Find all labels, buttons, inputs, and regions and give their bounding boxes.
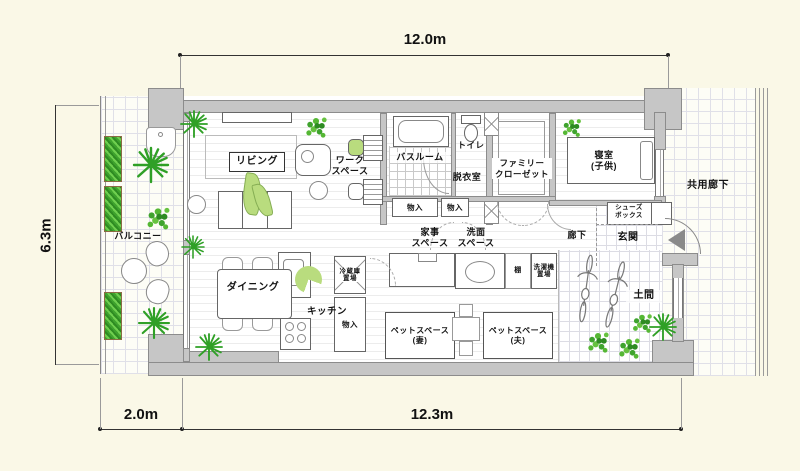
pet-center-cabinet — [459, 304, 473, 317]
dim-guide — [56, 105, 99, 106]
pet-center-cabinet — [452, 317, 480, 341]
plant-bush-icon — [144, 205, 172, 231]
room-label-dressing: 脱衣室 — [445, 172, 489, 183]
bedroom-window — [655, 150, 664, 196]
dim-guide — [182, 378, 183, 429]
balcony-planter — [104, 136, 122, 182]
washing-machine-place: 洗濯機 置場 — [531, 253, 557, 289]
pet-space-wife-label: ペットスペース (妻) — [391, 326, 450, 346]
pet-center-cabinet — [459, 341, 473, 356]
room-label-doma: 土間 — [626, 290, 662, 303]
stove-burner — [285, 334, 294, 343]
tv-board — [222, 112, 292, 123]
balcony-sink-drain — [158, 132, 163, 137]
toilet-tank — [461, 115, 481, 124]
storage-label: 物入 — [447, 203, 463, 212]
dim-guide — [681, 378, 682, 429]
shelf-area: 棚 — [505, 253, 531, 289]
bicycle-icon — [574, 254, 598, 324]
bottom-dimension-line — [100, 429, 682, 430]
storage-box: 物入 — [441, 198, 469, 217]
pet-space-husband-label: ペットスペース (夫) — [489, 326, 548, 346]
right-wall-upper — [654, 112, 666, 150]
entrance-arrow-icon — [668, 229, 685, 251]
top-dimension-line — [180, 55, 669, 56]
dim-guide — [56, 364, 99, 365]
plant-bush-icon — [585, 330, 611, 354]
room-label-washstand: 洗面 スペース — [450, 227, 502, 250]
doma-window — [673, 278, 683, 318]
plant-star-icon — [181, 111, 207, 137]
room-label-housework: 家事 スペース — [404, 227, 456, 250]
room-label-corridor: 廊下 — [558, 230, 596, 241]
washer-label: 洗濯機 置場 — [534, 264, 555, 279]
room-label-shared-corridor: 共用廊下 — [668, 180, 748, 193]
storage-box: 物入 — [392, 198, 438, 217]
window-mullion — [183, 348, 190, 362]
pet-space-wife-box: ペットスペース (妻) — [385, 312, 455, 359]
shelf-label: 棚 — [514, 267, 522, 276]
shoe-box-label: シューズ ボックス — [608, 204, 650, 221]
room-label-kitchen: キッチン — [302, 306, 352, 318]
room-label-workspace: ワーク スペース — [322, 155, 378, 178]
dim-guide — [100, 378, 101, 429]
plant-bush-icon — [560, 117, 583, 138]
bottom-balcony-dimension-label: 2.0m — [105, 406, 177, 423]
room-label-entrance: 玄関 — [606, 232, 650, 245]
balcony-table — [121, 258, 147, 284]
balcony-planter — [104, 292, 122, 340]
plant-bush-icon — [616, 336, 642, 360]
workspace-desk — [363, 179, 383, 205]
bathtub-inner — [398, 120, 444, 143]
room-label-family-closet: ファミリー クローゼット — [492, 158, 552, 179]
room-label-bathroom: バスルーム — [390, 152, 450, 163]
bottom-wall — [148, 362, 694, 376]
plant-star-icon — [182, 236, 204, 258]
storage-label: 物入 — [407, 203, 423, 212]
lounge-chair-cushion — [301, 150, 314, 163]
dim-guide — [668, 56, 669, 88]
balcony-planter — [104, 186, 122, 232]
left-dimension-label: 6.3m — [38, 208, 55, 264]
top-dimension-label: 12.0m — [375, 31, 475, 48]
room-label-dining: ダイニング — [212, 282, 294, 295]
room-label-living: リビング — [229, 156, 285, 169]
plant-bush-icon — [303, 115, 329, 139]
plant-star-icon — [134, 148, 168, 182]
stove-counter — [280, 318, 311, 350]
stove-burner — [297, 322, 306, 331]
wall-bath-toilet — [451, 113, 456, 198]
corridor-railing — [755, 88, 768, 376]
bicycle-icon — [603, 260, 627, 330]
workspace-chair-person — [348, 139, 364, 156]
pet-space-husband-box: ペットスペース (夫) — [483, 312, 553, 359]
pillar-top-left — [148, 88, 184, 130]
plant-star-icon — [139, 308, 169, 338]
entrance-step-dashed-line — [596, 224, 658, 225]
storage-label: 物入 — [342, 320, 358, 329]
pipe-shaft-top — [484, 112, 499, 136]
wall-living-bathroom — [380, 113, 387, 225]
stove-burner — [297, 334, 306, 343]
floor-plan: 12.0m 6.3m 2.0m 12.3m — [0, 0, 800, 471]
stove-burner — [285, 322, 294, 331]
bed-pillow — [640, 141, 653, 180]
plant-star-icon — [650, 314, 676, 340]
room-label-balcony: バルコニー — [106, 231, 170, 242]
plant-star-icon — [196, 334, 222, 360]
room-label-bedroom-child: 寝室 (子供) — [578, 150, 630, 173]
room-label-toilet: トイレ — [453, 140, 489, 151]
washbasin — [465, 261, 495, 283]
housework-desk-item — [418, 253, 437, 262]
stool — [309, 181, 328, 200]
workspace-chair — [348, 183, 364, 200]
refrigerator-place: 冷蔵庫 置場 — [334, 256, 366, 294]
fridge-label: 冷蔵庫 置場 — [340, 268, 361, 283]
bottom-main-dimension-label: 12.3m — [380, 406, 484, 423]
left-dimension-line — [55, 105, 56, 365]
ottoman — [187, 195, 206, 214]
